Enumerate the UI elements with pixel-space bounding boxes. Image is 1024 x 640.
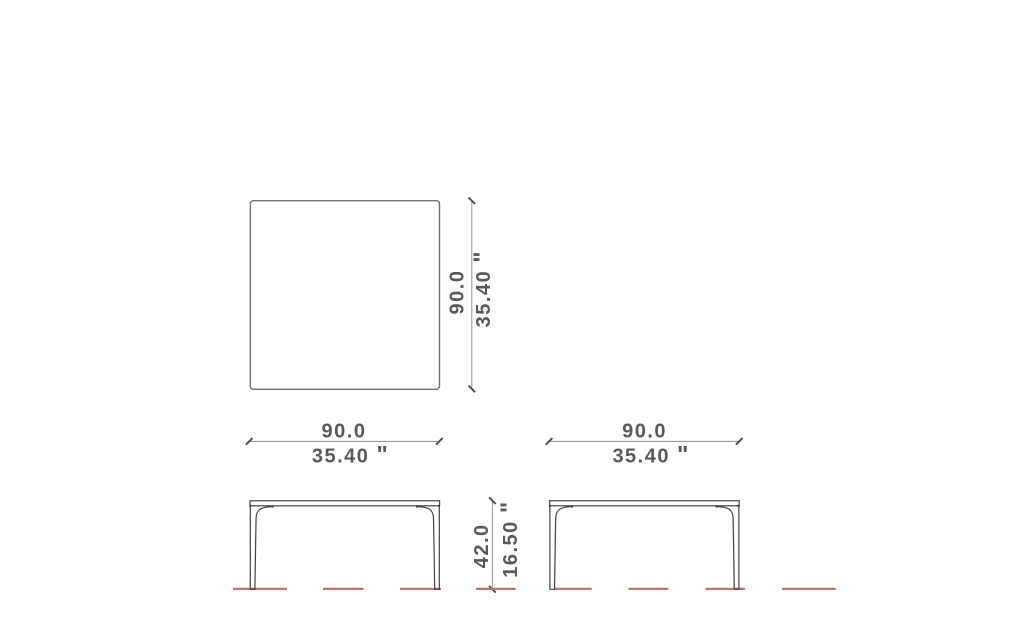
svg-text:35.40 ": 35.40 ": [469, 250, 496, 328]
svg-text:90.0: 90.0: [446, 270, 468, 315]
svg-text:35.40 ": 35.40 ": [612, 441, 690, 468]
svg-text:90.0: 90.0: [322, 421, 367, 443]
svg-text:16.50 ": 16.50 ": [496, 500, 523, 578]
svg-text:90.0: 90.0: [622, 421, 667, 443]
svg-text:42.0: 42.0: [471, 523, 493, 568]
svg-text:35.40 ": 35.40 ": [312, 441, 390, 468]
